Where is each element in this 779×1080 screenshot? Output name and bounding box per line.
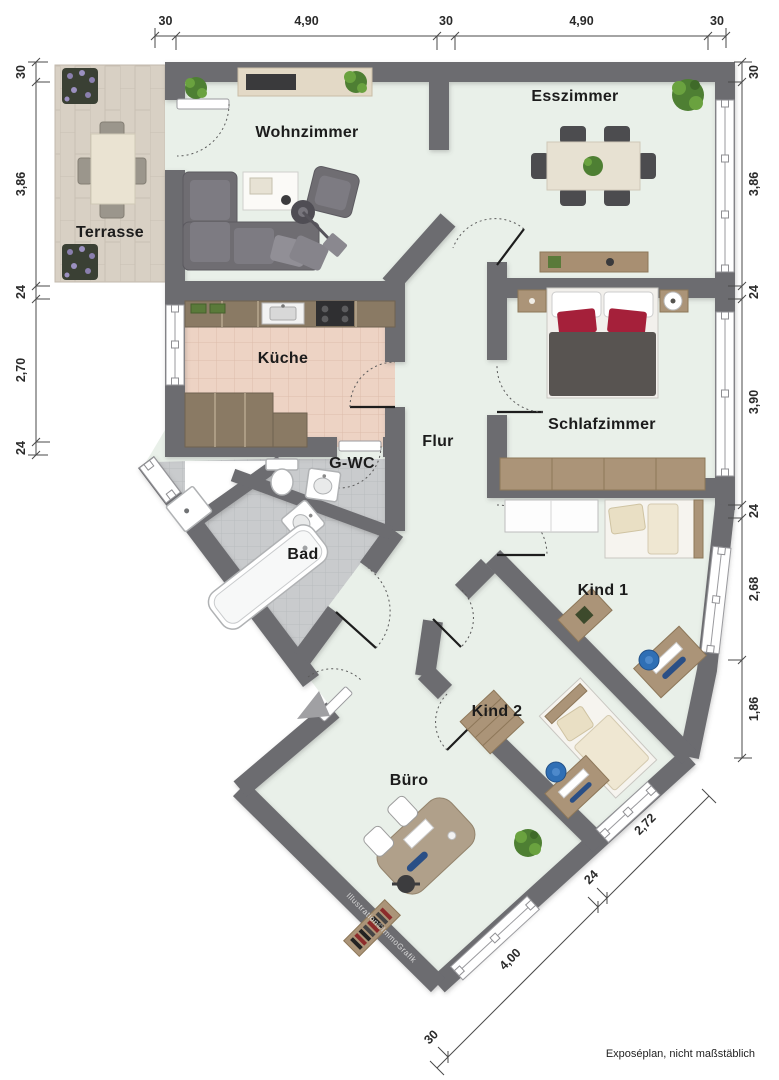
corner-plant (672, 79, 704, 111)
tv-sideboard (238, 68, 372, 96)
room-label-flur: Flur (422, 433, 453, 450)
room-label-schlafzimmer: Schlafzimmer (548, 416, 656, 433)
svg-text:4,90: 4,90 (569, 14, 593, 28)
room-label-terrasse: Terrasse (76, 224, 144, 241)
dimension-chain-left: 30 3,86 24 2,70 24 (14, 58, 50, 459)
lavender-planter (62, 244, 98, 280)
svg-text:4,00: 4,00 (497, 946, 524, 973)
washbasin (305, 468, 341, 502)
room-label-wohnzimmer: Wohnzimmer (255, 124, 358, 141)
svg-text:3,86: 3,86 (747, 172, 761, 196)
svg-text:24: 24 (747, 285, 761, 299)
svg-text:30: 30 (14, 65, 28, 79)
wardrobe (500, 458, 705, 490)
floor-plant (185, 77, 207, 99)
svg-text:1,86: 1,86 (747, 697, 761, 721)
svg-text:3,86: 3,86 (14, 172, 28, 196)
window-kitchen (166, 305, 184, 385)
window-esszimmer (716, 100, 734, 272)
svg-text:2,68: 2,68 (747, 577, 761, 601)
svg-text:3,90: 3,90 (747, 390, 761, 414)
svg-text:30: 30 (747, 65, 761, 79)
room-label-kueche: Küche (258, 350, 308, 367)
wardrobe-kind1 (505, 500, 598, 532)
desk-chair-blue (546, 762, 566, 782)
lavender-planter (62, 68, 98, 104)
svg-text:24: 24 (14, 285, 28, 299)
room-label-kind2: Kind 2 (472, 703, 523, 720)
floorplan-canvas: Terrasse Wohnzimmer Esszimmer Küche Schl… (0, 0, 779, 1080)
svg-text:4,90: 4,90 (294, 14, 318, 28)
double-bed (547, 288, 658, 398)
room-label-buero: Büro (390, 772, 429, 789)
desk-chair-blue (639, 650, 659, 670)
coffee-table (243, 172, 298, 210)
svg-text:30: 30 (710, 14, 724, 28)
nightstand (660, 290, 688, 312)
sideboard (540, 252, 648, 272)
room-label-gwc: G-WC (329, 455, 375, 472)
room-label-bad: Bad (287, 546, 318, 563)
bed-kind1 (605, 500, 703, 558)
kitchen-counter (185, 301, 395, 327)
window-schlafzimmer (716, 312, 734, 476)
svg-text:30: 30 (421, 1027, 441, 1047)
nightstand (518, 290, 546, 312)
svg-text:24: 24 (747, 504, 761, 518)
svg-text:30: 30 (439, 14, 453, 28)
floorplan-page: Terrasse Wohnzimmer Esszimmer Küche Schl… (0, 0, 779, 1080)
dimension-chain-top: 30 4,90 30 4,90 30 (151, 14, 730, 50)
plant-buero (514, 829, 542, 857)
room-label-kind1: Kind 1 (578, 582, 629, 599)
svg-text:2,70: 2,70 (14, 358, 28, 382)
svg-text:30: 30 (159, 14, 173, 28)
svg-text:24: 24 (14, 441, 28, 455)
room-label-esszimmer: Esszimmer (531, 88, 618, 105)
disclaimer: Exposéplan, nicht maßstäblich (606, 1048, 755, 1060)
svg-text:24: 24 (581, 867, 601, 887)
